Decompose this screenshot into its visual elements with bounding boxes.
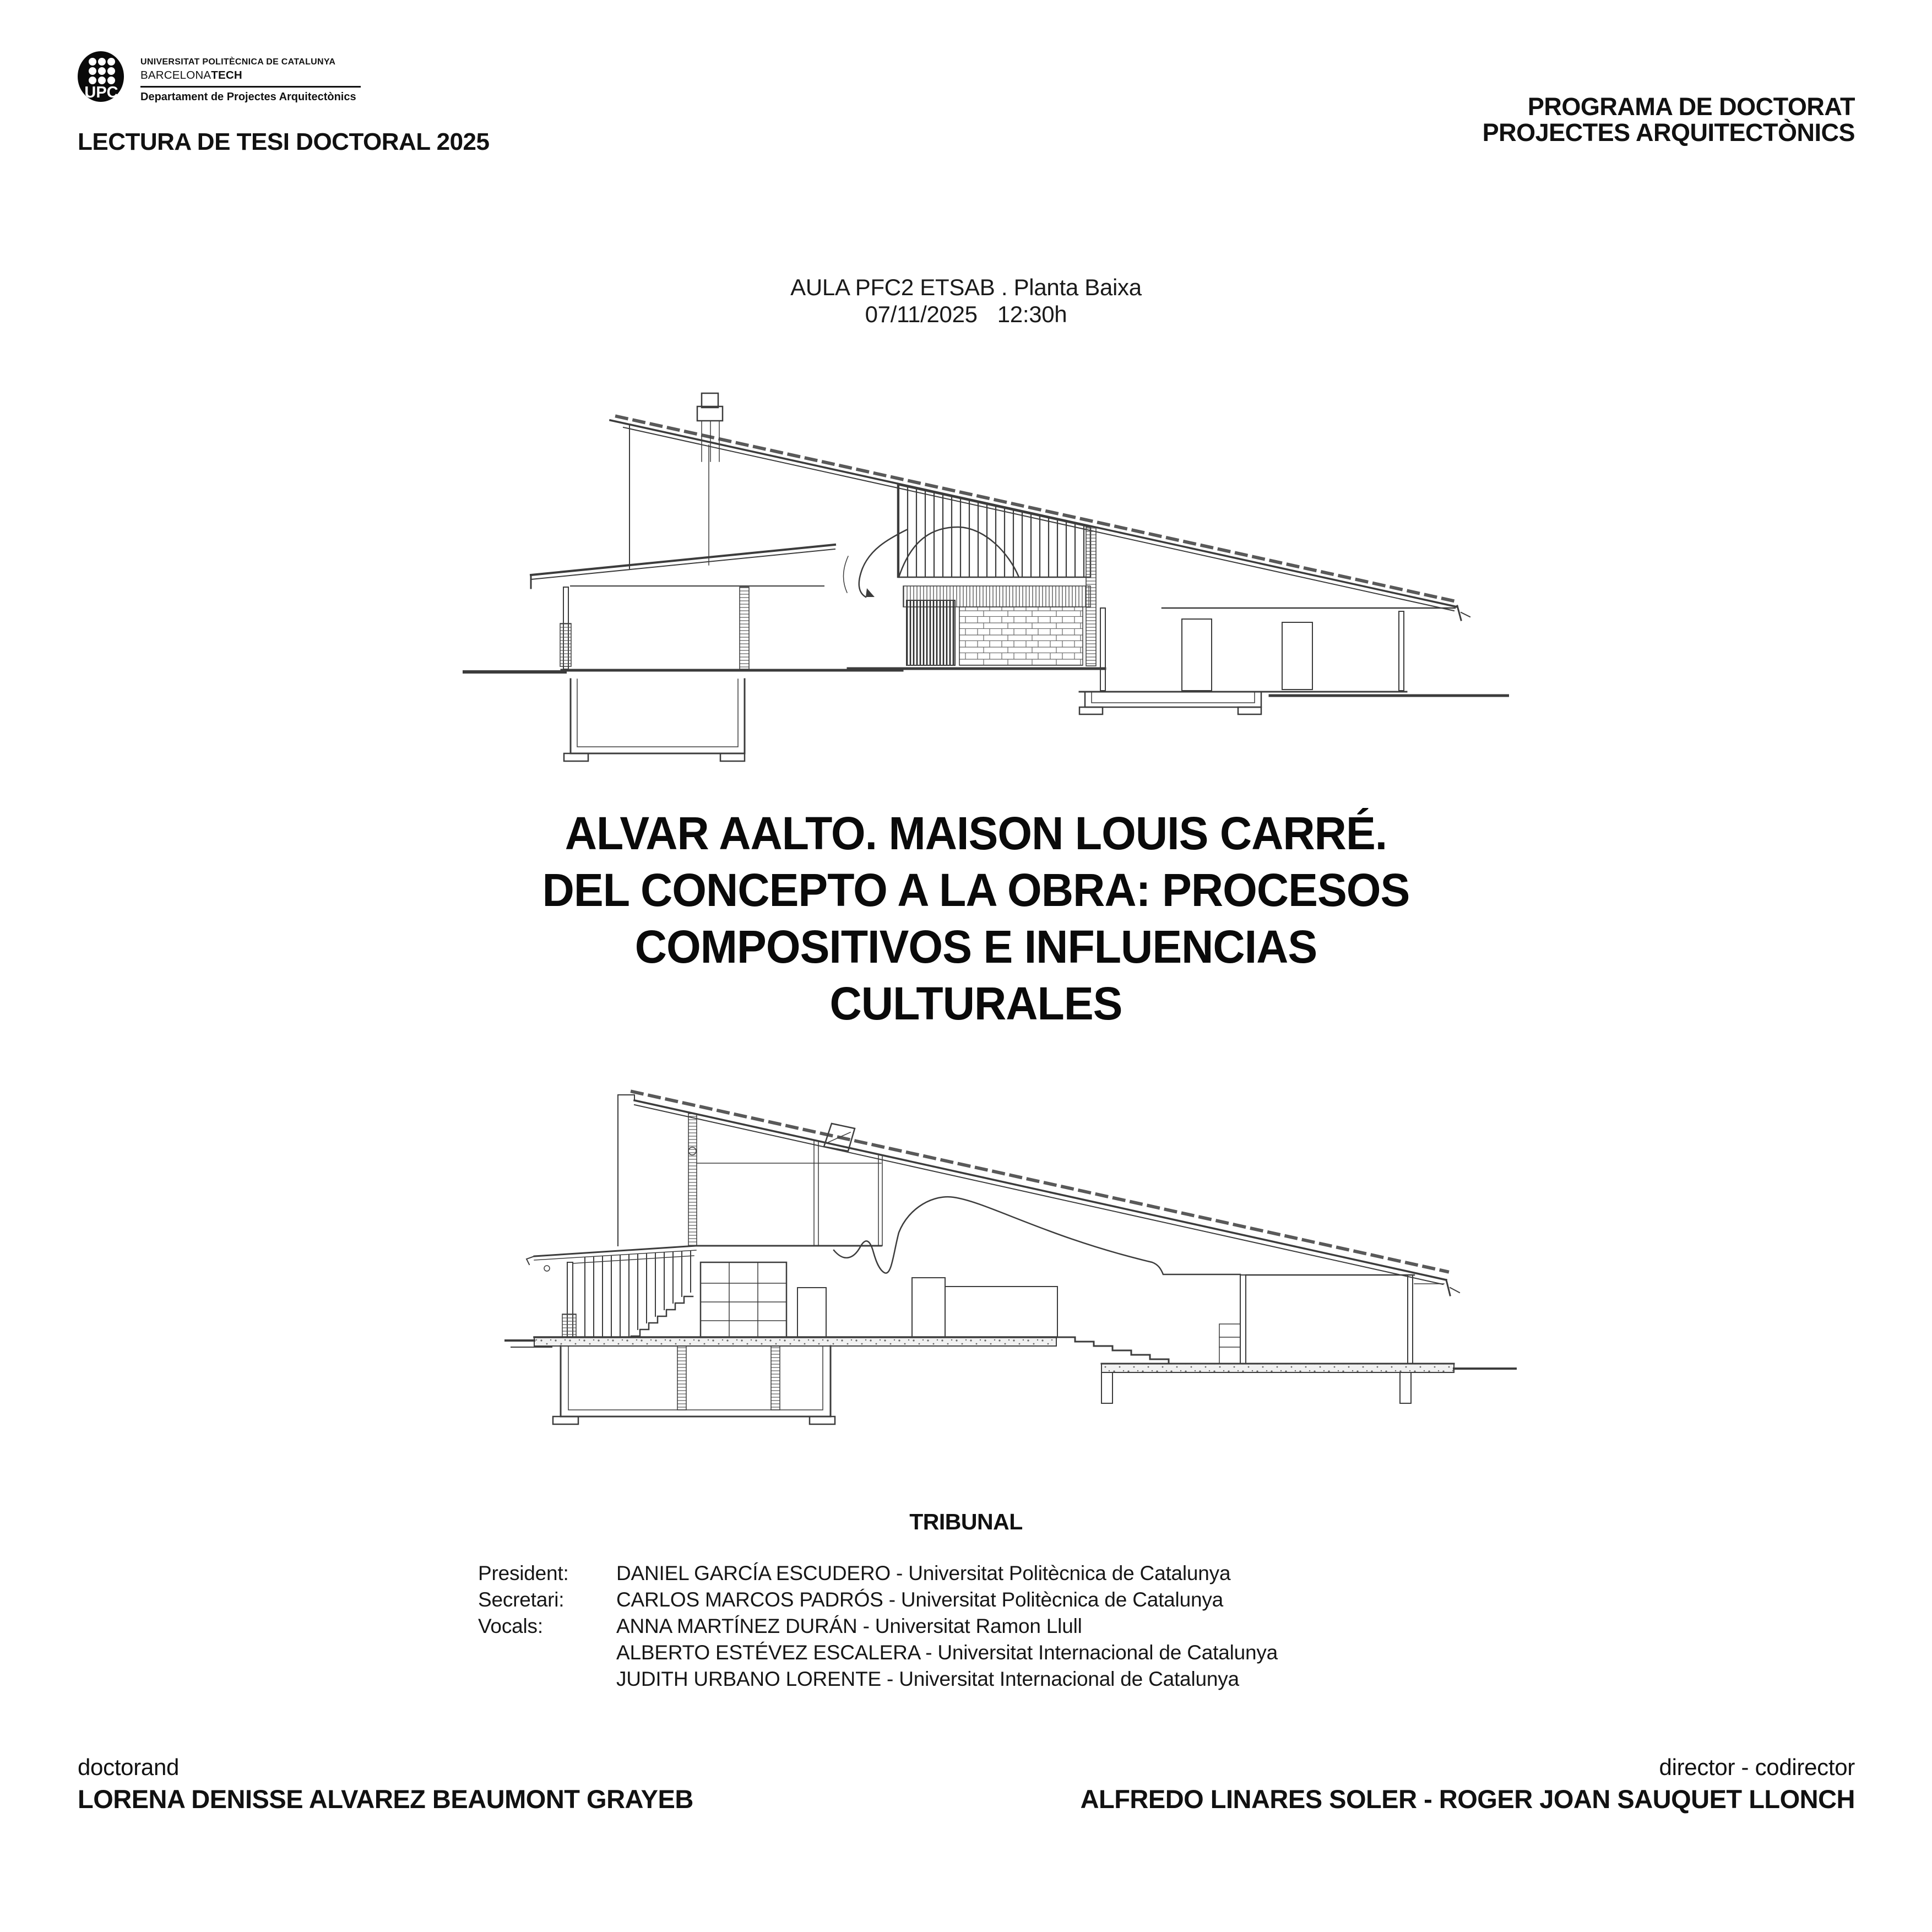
upc-logo-icon: UPC <box>78 51 125 102</box>
upc-acronym: UPC <box>84 84 118 101</box>
thesis-title-line-3: COMPOSITIVOS E INFLUENCIAS <box>500 919 1452 975</box>
member-separator: - <box>858 1615 875 1637</box>
section-drawing-top <box>463 375 1509 793</box>
doctorand-block: doctorand LORENA DENISSE ALVAREZ BEAUMON… <box>78 1755 693 1813</box>
member-affiliation: Universitat Internacional de Catalunya <box>937 1641 1278 1664</box>
tribunal-role: Secretari: <box>478 1587 616 1613</box>
member-affiliation: Universitat Ramon Llull <box>875 1615 1082 1637</box>
member-affiliation: Universitat Politècnica de Catalunya <box>908 1562 1230 1584</box>
program-line-1: PROGRAMA DE DOCTORAT <box>1483 94 1855 120</box>
thesis-title-line-1: ALVAR AALTO. MAISON LOUIS CARRÉ. <box>500 805 1452 862</box>
thesis-poster: UPC UNIVERSITAT POLITÈCNICA DE CATALUNYA… <box>0 0 1932 1932</box>
tribunal-member: ALBERTO ESTÉVEZ ESCALERA - Universitat I… <box>616 1640 1278 1666</box>
member-name: JUDITH URBANO LORENTE <box>616 1668 881 1690</box>
member-separator: - <box>891 1562 908 1584</box>
director-block: director - codirector ALFREDO LINARES SO… <box>1081 1755 1855 1813</box>
member-name: ALBERTO ESTÉVEZ ESCALERA <box>616 1641 920 1664</box>
member-affiliation: Universitat Politècnica de Catalunya <box>901 1588 1223 1611</box>
tribunal-row-vocal-1: Vocals: ANNA MARTÍNEZ DURÁN - Universita… <box>478 1613 1278 1640</box>
section-drawing-bottom <box>496 1068 1531 1454</box>
tribunal-member: DANIEL GARCÍA ESCUDERO - Universitat Pol… <box>616 1560 1278 1587</box>
member-separator: - <box>881 1668 899 1690</box>
brand-bold: TECH <box>211 69 242 82</box>
member-separator: - <box>920 1641 937 1664</box>
tribunal-member: ANNA MARTÍNEZ DURÁN - Universitat Ramon … <box>616 1613 1278 1640</box>
member-name: ANNA MARTÍNEZ DURÁN <box>616 1615 858 1637</box>
thesis-title-line-2: DEL CONCEPTO A LA OBRA: PROCESOS <box>500 862 1452 919</box>
date: 07/11/2025 <box>865 301 978 327</box>
tribunal-role: President: <box>478 1560 616 1587</box>
session-info: AULA PFC2 ETSAB . Planta Baixa 07/11/202… <box>470 274 1462 328</box>
brand-regular: BARCELONA <box>140 69 211 82</box>
barcelonatech-line: BARCELONATECH <box>140 69 361 82</box>
director-names: ALFREDO LINARES SOLER - ROGER JOAN SAUQU… <box>1081 1786 1855 1813</box>
member-separator: - <box>883 1588 901 1611</box>
tribunal-role <box>478 1666 616 1692</box>
member-name: CARLOS MARCOS PADRÓS <box>616 1588 883 1611</box>
member-name: DANIEL GARCÍA ESCUDERO <box>616 1562 891 1584</box>
director-label: director - codirector <box>1081 1755 1855 1780</box>
tribunal-list: President: DANIEL GARCÍA ESCUDERO - Univ… <box>478 1560 1278 1692</box>
tribunal-row-vocal-2: ALBERTO ESTÉVEZ ESCALERA - Universitat I… <box>478 1640 1278 1666</box>
tribunal-member: CARLOS MARCOS PADRÓS - Universitat Polit… <box>616 1587 1278 1613</box>
event-title: LECTURA DE TESI DOCTORAL 2025 <box>78 128 490 156</box>
tribunal-heading: TRIBUNAL <box>470 1509 1462 1535</box>
doctorand-name: LORENA DENISSE ALVAREZ BEAUMONT GRAYEB <box>78 1786 693 1813</box>
upc-logo-text: UNIVERSITAT POLITÈCNICA DE CATALUNYA BAR… <box>140 51 361 104</box>
tribunal-row-president: President: DANIEL GARCÍA ESCUDERO - Univ… <box>478 1560 1278 1587</box>
university-name: UNIVERSITAT POLITÈCNICA DE CATALUNYA <box>140 57 361 67</box>
date-time: 07/11/202512:30h <box>470 301 1462 328</box>
doctorate-program: PROGRAMA DE DOCTORAT PROJECTES ARQUITECT… <box>1483 94 1855 145</box>
venue: AULA PFC2 ETSAB . Planta Baixa <box>470 274 1462 301</box>
tribunal-member: JUDITH URBANO LORENTE - Universitat Inte… <box>616 1666 1278 1692</box>
department-name: Departament de Projectes Arquitectònics <box>140 91 361 104</box>
tribunal-row-vocal-3: JUDITH URBANO LORENTE - Universitat Inte… <box>478 1666 1278 1692</box>
program-line-2: PROJECTES ARQUITECTÒNICS <box>1483 120 1855 145</box>
upc-logo-block: UPC UNIVERSITAT POLITÈCNICA DE CATALUNYA… <box>78 51 361 104</box>
logo-divider <box>140 86 361 88</box>
tribunal-role <box>478 1640 616 1666</box>
thesis-title: ALVAR AALTO. MAISON LOUIS CARRÉ. DEL CON… <box>500 805 1452 1032</box>
member-affiliation: Universitat Internacional de Catalunya <box>899 1668 1239 1690</box>
doctorand-label: doctorand <box>78 1755 693 1780</box>
thesis-title-line-4: CULTURALES <box>500 975 1452 1032</box>
tribunal-role: Vocals: <box>478 1613 616 1640</box>
tribunal-row-secretari: Secretari: CARLOS MARCOS PADRÓS - Univer… <box>478 1587 1278 1613</box>
time: 12:30h <box>997 301 1067 327</box>
